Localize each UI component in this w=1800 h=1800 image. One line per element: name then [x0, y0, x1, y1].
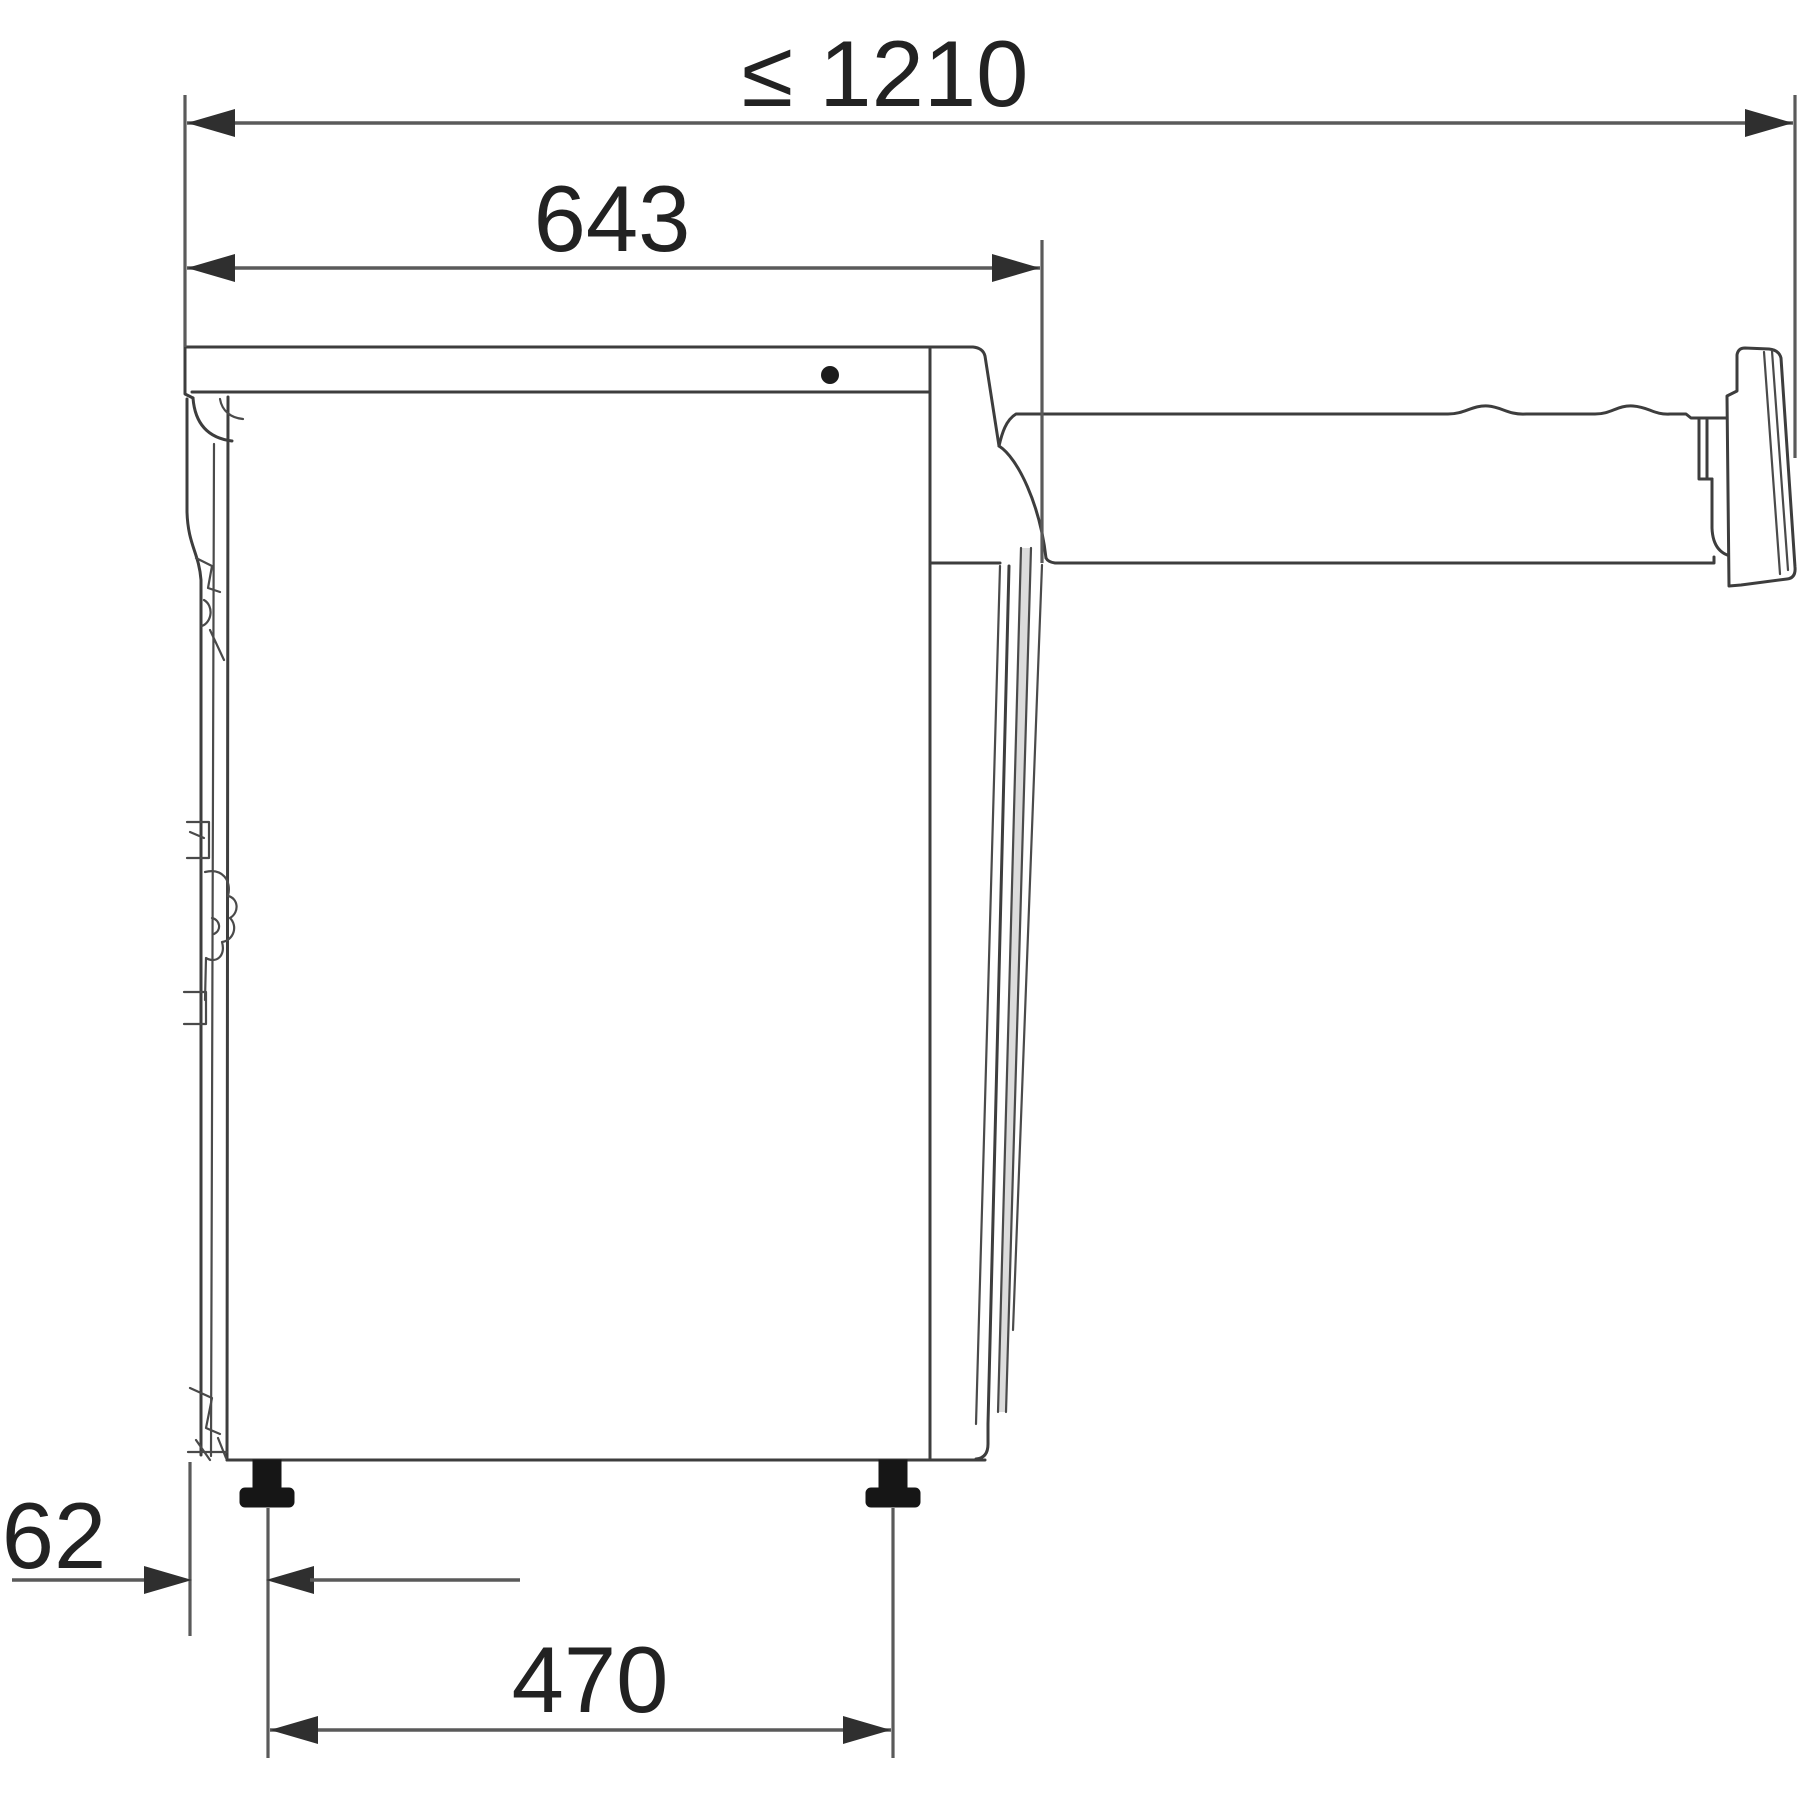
rear-panel-line-a [976, 566, 1000, 1424]
door-bottom-detail [188, 1388, 227, 1460]
rear-foot [866, 1460, 920, 1507]
door-top-hinge-inner-arc [220, 399, 243, 419]
arrowhead-left [187, 109, 235, 137]
door-top-hinge-arc [193, 398, 232, 441]
body-front-face [227, 397, 228, 1460]
arrowhead-left [270, 1716, 318, 1744]
arrowhead-right [992, 254, 1040, 282]
front-foot [240, 1460, 294, 1507]
feet [240, 1460, 920, 1507]
drawer-top-edge [999, 406, 1699, 446]
lid-screw-dot [821, 366, 839, 384]
dimension-drawing: ≤ 1210 643 62 470 [0, 0, 1800, 1800]
door-step-detail [184, 992, 206, 1024]
lid-left-edge [185, 347, 193, 398]
door-hinge-bracket [187, 822, 209, 858]
door-hinge-detail [205, 871, 237, 1000]
arrowhead-right-pointing [144, 1566, 192, 1594]
drawing-canvas: ≤ 1210 643 62 470 [0, 0, 1800, 1800]
dim-label-1210: ≤ 1210 [742, 21, 1029, 126]
door-profile [184, 398, 243, 1460]
end-panel-face [1727, 348, 1795, 586]
lid-top-edge [185, 347, 999, 446]
dim-label-643: 643 [534, 166, 691, 271]
end-panel [1727, 348, 1795, 586]
door-outer-face [187, 399, 201, 1455]
rear-recess-curve [999, 446, 1046, 558]
arrowhead-right [843, 1716, 891, 1744]
dim-label-62: 62 [2, 1483, 107, 1588]
drawer-bottom-edge [1046, 557, 1714, 563]
arrowhead-right [1745, 109, 1793, 137]
door-edge-seam [211, 444, 214, 1456]
arrowhead-left [187, 254, 235, 282]
appliance-body [185, 347, 1046, 1460]
dimension-appliance-depth: 643 [187, 166, 1042, 563]
arrowhead-left-pointing [266, 1566, 314, 1594]
dim-label-470: 470 [512, 1627, 669, 1732]
rear-pullout-drawer [999, 406, 1736, 563]
dimension-foot-spacing: 470 [270, 1508, 893, 1758]
